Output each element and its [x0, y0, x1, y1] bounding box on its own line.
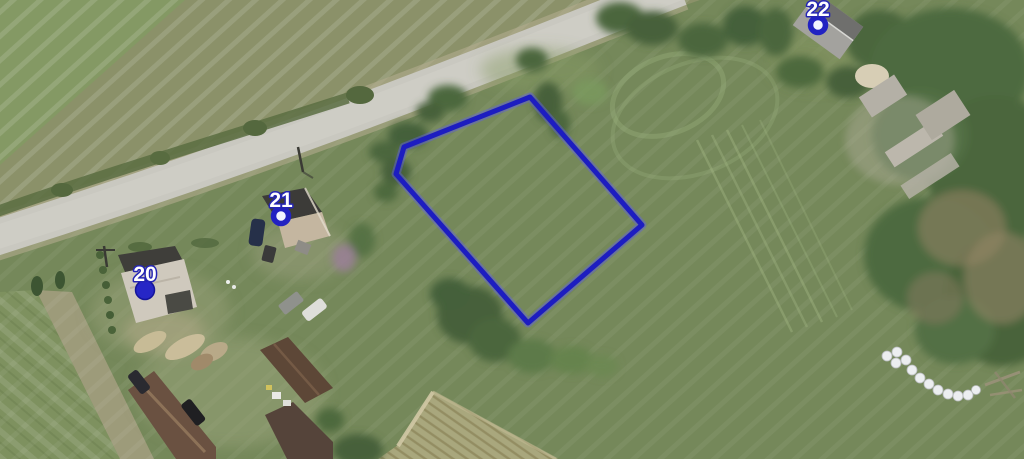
marker-label: 21: [269, 189, 293, 212]
marker-label: 22: [806, 0, 829, 21]
marker-label: 20: [133, 263, 156, 286]
map-marker-20[interactable]: 20: [133, 263, 156, 300]
map-viewport[interactable]: 202122: [0, 0, 1024, 459]
aerial-photo: 202122: [0, 0, 1024, 459]
map-marker-22[interactable]: 22: [806, 0, 829, 33]
map-marker-21[interactable]: 21: [269, 189, 293, 224]
